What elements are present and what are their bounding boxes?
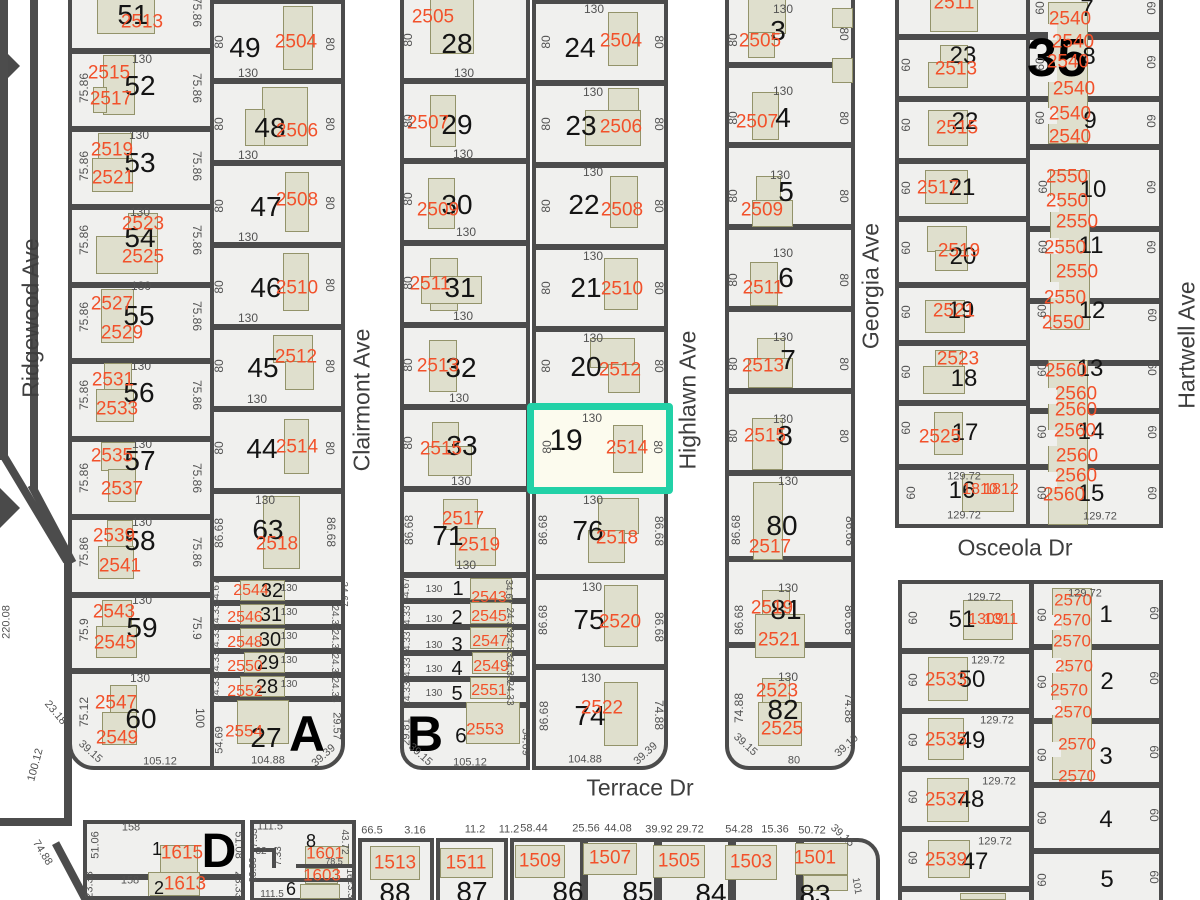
dimension-label: 44.08	[604, 824, 632, 835]
dimension-label: 129.72	[1083, 512, 1117, 523]
dimension-label: 130	[449, 392, 469, 404]
lot-number-label: 83	[799, 881, 830, 900]
dimension-label: 130	[581, 672, 601, 684]
dimension-label: 24.33	[212, 603, 222, 628]
dimension-label: 80	[324, 278, 336, 291]
address-label: 2540	[1052, 33, 1094, 52]
address-label: 2540	[1049, 105, 1091, 124]
dimension-label: 130	[773, 85, 793, 97]
dimension-label: 130	[451, 475, 471, 487]
address-label: 2504	[275, 33, 317, 52]
dimension-label: 100	[194, 708, 206, 728]
lot-number-label: 87	[456, 878, 487, 900]
address-label: 2520	[599, 613, 641, 632]
dimension-label: 130	[778, 475, 798, 487]
dimension-label: 60	[1145, 240, 1157, 253]
dimension-label: 60	[1036, 811, 1048, 824]
lot-number-label: 21	[570, 274, 601, 302]
dimension-label: 60	[1036, 304, 1048, 317]
dimension-label: 74.88	[653, 700, 665, 730]
dimension-label: 75.86	[191, 151, 203, 181]
dimension-label: 130	[131, 360, 151, 372]
dimension-label: 80	[324, 196, 336, 209]
dimension-label: 75.86	[78, 537, 90, 567]
dimension-label: 60	[1146, 362, 1158, 375]
dimension-label: 129.72	[978, 837, 1012, 848]
address-label: 2535	[925, 731, 967, 750]
dimension-label: 100.12	[26, 747, 45, 782]
dimension-label: 129.72	[967, 593, 1001, 604]
dimension-label: 80	[653, 117, 665, 130]
dimension-label: 104.88	[251, 756, 285, 767]
dimension-label: 60	[907, 790, 919, 803]
dimension-label: 80	[213, 441, 225, 454]
address-label: 2505	[412, 8, 454, 27]
dimension-label: 80	[788, 756, 800, 767]
address-label: 2554	[225, 723, 263, 740]
dimension-label: 129.72	[947, 511, 981, 522]
address-label: 2511	[743, 279, 784, 298]
dimension-label: 75.86	[191, 380, 203, 410]
dimension-label: 104.88	[568, 755, 602, 766]
dimension-label: 24.33	[504, 632, 514, 657]
address-label: 2513	[742, 357, 784, 376]
dimension-label: 130	[773, 247, 793, 259]
dimension-label: 75.86	[191, 537, 203, 567]
dimension-label: 51.06	[91, 831, 102, 859]
address-label: 2550	[1044, 289, 1086, 308]
address-label: 2525	[122, 248, 164, 267]
address-label: 2509	[417, 201, 459, 220]
address-label: 2511	[934, 0, 975, 13]
dimension-label: 130	[426, 665, 443, 675]
address-label: 2508	[601, 201, 643, 220]
address-label: 2513	[417, 357, 459, 376]
address-label: 2505	[739, 32, 781, 51]
address-label: 2547	[95, 694, 137, 713]
dimension-label: 34.67	[338, 581, 348, 606]
address-label: 2543	[471, 590, 507, 606]
address-label: 2529	[101, 324, 143, 343]
lot-number-label: 28	[441, 30, 472, 58]
dimension-label: 80	[838, 189, 850, 202]
dimension-label: 60	[1146, 308, 1158, 321]
dimension-label: 130	[453, 148, 473, 160]
address-label: 2514	[276, 438, 318, 457]
dimension-label: 130	[454, 67, 474, 79]
address-label: 2550	[227, 659, 263, 675]
dimension-label: 60	[1148, 808, 1160, 821]
address-label: 2521	[933, 302, 975, 321]
dimension-label: 24.33	[329, 629, 339, 654]
address-label: 2541	[99, 557, 141, 576]
dimension-label: 39.92	[645, 825, 673, 836]
dimension-label: 80	[727, 357, 739, 370]
dimension-label: 80	[324, 37, 336, 50]
address-label: 2504	[600, 32, 642, 51]
address-label: 2543	[93, 603, 135, 622]
dimension-label: 130	[778, 671, 798, 683]
address-label: 2560	[1054, 422, 1096, 441]
dimension-label: 60	[1036, 608, 1048, 621]
dimension-label: 75.86	[191, 73, 203, 103]
dimension-label: 80	[402, 33, 414, 46]
address-label: 2548	[227, 635, 263, 651]
dimension-label: 80	[213, 35, 225, 48]
dimension-label: 130	[583, 250, 603, 262]
lot-number-label: 3	[451, 635, 462, 655]
dimension-label: 11.2	[465, 825, 486, 836]
street-name-label: Highlawn Ave	[677, 331, 700, 470]
dimension-label: 60	[1036, 748, 1048, 761]
dimension-label: 130	[773, 413, 793, 425]
dimension-label: 101	[850, 877, 863, 895]
lot-number-label: 18	[951, 367, 978, 391]
dimension-label: 58.44	[520, 824, 548, 835]
dimension-label: 86.68	[538, 701, 550, 731]
dimension-label: 23.33	[85, 871, 96, 899]
dimension-label: 60	[1145, 55, 1157, 68]
dimension-label: 29.57	[331, 712, 342, 740]
lot-number-label: 88	[379, 879, 410, 900]
dimension-label: 75.86	[78, 463, 90, 493]
address-label: 2513	[935, 60, 977, 79]
dimension-label: 80	[213, 199, 225, 212]
lot-number-label: 2	[154, 879, 164, 897]
lot-number-label: 1	[1099, 603, 1112, 627]
dimension-label: 60	[1036, 425, 1048, 438]
parcel[interactable]	[1030, 784, 1163, 852]
address-label: 2519	[751, 599, 793, 618]
dimension-label: 60	[1037, 180, 1049, 193]
address-label: 1603	[303, 867, 341, 884]
address-label: 2514	[606, 439, 648, 458]
dimension-label: 74.88	[733, 693, 745, 723]
dimension-label: 130	[130, 206, 150, 218]
dimension-label: 60	[1145, 1, 1157, 14]
address-label: 2521	[92, 169, 134, 188]
dimension-label: 75.86	[78, 380, 90, 410]
dimension-label: 23.33	[233, 871, 244, 899]
lot-number-label: 4	[451, 659, 462, 679]
boundary-line	[0, 0, 8, 460]
address-label: 2515	[744, 427, 786, 446]
lot-number-label: 31	[260, 605, 282, 625]
address-label: 2550	[1046, 168, 1088, 187]
dimension-label: 60	[1034, 111, 1046, 124]
dimension-label: 24.33	[403, 631, 413, 656]
address-label: 2539	[93, 527, 135, 546]
dimension-label: 86.68	[213, 518, 225, 548]
address-label: 2507	[736, 113, 778, 132]
dimension-label: 24.33	[329, 653, 339, 678]
address-label: 2537	[925, 791, 967, 810]
lot-number-label: 19	[549, 426, 582, 456]
address-label: 2519	[938, 242, 980, 261]
address-label: 2570	[1050, 682, 1088, 699]
dimension-label: 60	[1036, 873, 1048, 886]
dimension-label: 86.68	[653, 612, 665, 642]
dimension-label: 60	[1146, 486, 1158, 499]
lot-number-label: 44	[246, 435, 277, 463]
address-label: 2540	[1053, 80, 1095, 99]
block-letter-label: D	[202, 828, 237, 876]
dimension-label: 130	[453, 310, 473, 322]
lot-number-label: 4	[1099, 808, 1112, 832]
dimension-label: 60	[907, 733, 919, 746]
dimension-label: 60	[907, 611, 919, 624]
dimension-label: 158	[122, 823, 140, 834]
dimension-label: 75.86	[78, 151, 90, 181]
address-label: 2547	[472, 634, 508, 650]
dimension-label: 78.5	[325, 858, 343, 867]
dimension-label: 34.67	[503, 579, 513, 604]
dimension-label: 130	[456, 559, 476, 571]
dimension-label: 130	[281, 584, 298, 594]
dimension-label: 60	[1145, 114, 1157, 127]
dimension-label: 75.9	[191, 616, 203, 639]
address-label: 2537	[101, 480, 143, 499]
dimension-label: 11.2	[499, 825, 520, 836]
dimension-label: 86.68	[653, 516, 665, 546]
address-label: 2513	[121, 13, 163, 32]
dimension-label: 75.86	[78, 302, 90, 332]
dimension-label: 60	[900, 58, 912, 71]
dimension-label: 130	[131, 280, 151, 292]
dimension-label: 129.72	[971, 656, 1005, 667]
dimension-label: 60	[1146, 425, 1158, 438]
dimension-label: 60	[1034, 57, 1046, 70]
dimension-label: 25.56	[572, 824, 600, 835]
address-label: 1507	[589, 849, 631, 868]
dimension-label: 80	[727, 33, 739, 46]
dimension-label: 130	[238, 231, 258, 243]
dimension-label: 60	[905, 486, 917, 499]
dimension-label: 130	[582, 412, 602, 424]
address-label: 2515	[420, 440, 462, 459]
dimension-label: 80	[838, 429, 850, 442]
address-label: 2509	[741, 201, 783, 220]
parcel-map-canvas[interactable]: 5152535455565758596049484746454463323130…	[0, 0, 1200, 900]
address-label: 2570	[1058, 768, 1096, 785]
address-label: 2570	[1053, 612, 1091, 629]
address-label: 2560	[1055, 401, 1097, 420]
address-label: 2533	[925, 671, 967, 690]
lot-number-label: 22	[568, 191, 599, 219]
street-name-label: Terrace Dr	[586, 777, 693, 800]
dimension-label: 86.68	[537, 605, 549, 635]
address-label: 2560	[1056, 447, 1098, 466]
dimension-label: 130	[281, 656, 298, 666]
dimension-label: 130	[426, 689, 443, 699]
dimension-label: 75.86	[191, 463, 203, 493]
dimension-label: 60	[900, 365, 912, 378]
dimension-label: 75.86	[191, 301, 203, 331]
dimension-label: 60	[1148, 870, 1160, 883]
dimension-label: 130	[255, 494, 275, 506]
address-label: 1501	[794, 849, 836, 868]
dimension-label: 130	[583, 86, 603, 98]
street-name-label: Clairmont Ave	[351, 329, 374, 472]
dimension-label: 86.68	[843, 605, 855, 635]
address-label: 2535	[91, 447, 133, 466]
address-label: 2560	[1055, 467, 1097, 486]
street-name-label: Georgia Ave	[860, 223, 883, 349]
dimension-label: 74.88	[30, 838, 54, 867]
address-label: 2533	[96, 400, 138, 419]
dimension-label: 130	[456, 226, 476, 238]
dimension-label: 74.88	[843, 693, 855, 723]
address-label: 2525	[919, 428, 961, 447]
address-label: 2551	[471, 683, 507, 699]
address-label: 2560	[1045, 362, 1087, 381]
address-label: 2545	[471, 609, 507, 625]
dimension-label: 60	[1036, 486, 1048, 499]
dimension-label: 60	[907, 851, 919, 864]
dimension-label: 80	[540, 281, 552, 294]
dimension-label: 54.69	[215, 726, 226, 754]
address-label: 2570	[1058, 736, 1096, 753]
address-label: 2550	[1046, 192, 1088, 211]
street-name-label: Ridgewood Ave	[20, 238, 43, 397]
dimension-label: 130	[583, 494, 603, 506]
dimension-label: 80	[727, 111, 739, 124]
dimension-label: 80	[653, 199, 665, 212]
dimension-label: 32	[255, 847, 266, 857]
dimension-label: 130	[238, 149, 258, 161]
address-label: 2518	[256, 535, 298, 554]
dimension-label: 130	[238, 312, 258, 324]
road-arrow-icon	[0, 482, 20, 534]
lot-number-label: 24	[564, 34, 595, 62]
dimension-label: 60	[1148, 745, 1160, 758]
dimension-label: 80	[324, 359, 336, 372]
dimension-label: 66.5	[361, 826, 382, 837]
dimension-label: 23.33	[249, 857, 259, 882]
address-label: 2540	[1049, 10, 1091, 29]
dimension-label: 23.3	[345, 879, 355, 898]
dimension-label: 24.33	[212, 627, 222, 652]
dimension-label: 60	[900, 181, 912, 194]
dimension-label: 60	[1148, 671, 1160, 684]
dimension-label: 75.9	[78, 618, 90, 641]
address-label: 2546	[227, 610, 263, 626]
address-label: 2519	[458, 536, 500, 555]
dimension-label: 24.33	[504, 656, 514, 681]
dimension-label: 60	[1036, 363, 1048, 376]
lot-number-label: 49	[229, 34, 260, 62]
address-label: 1812	[983, 482, 1019, 498]
address-label: 2539	[925, 851, 967, 870]
street-name-label: Hartwell Ave	[1176, 281, 1199, 408]
address-label: 1505	[658, 852, 700, 871]
address-label: 1511	[446, 854, 487, 873]
address-label: 2510	[276, 279, 318, 298]
dimension-label: 129.72	[947, 472, 981, 483]
parcel[interactable]	[1030, 720, 1163, 786]
dimension-label: 60	[1148, 606, 1160, 619]
dimension-label: 158	[121, 876, 139, 887]
dimension-label: 86.68	[537, 515, 549, 545]
dimension-label: 130	[238, 67, 258, 79]
dimension-label: 51.08	[233, 831, 244, 859]
dimension-label: 29.81	[402, 718, 413, 746]
dimension-label: 130	[130, 672, 150, 684]
dimension-label: 54.28	[725, 825, 753, 836]
dimension-label: 75.86	[191, 225, 203, 255]
dimension-label: 15.36	[761, 825, 789, 836]
dimension-label: 3.16	[404, 826, 425, 837]
dimension-label: 24.33	[403, 681, 413, 706]
address-label: 2515	[88, 64, 130, 83]
dimension-label: 130	[773, 3, 793, 15]
address-label: 2522	[581, 699, 623, 718]
dimension-label: 24.33	[504, 607, 514, 632]
dimension-label: 24.33	[403, 657, 413, 682]
dimension-label: 129.72	[1068, 589, 1102, 600]
address-label: 2523	[937, 350, 979, 369]
dimension-label: 130	[582, 581, 602, 593]
dimension-label: 60	[900, 305, 912, 318]
dimension-label: 86.68	[325, 517, 337, 547]
dimension-label: 130	[584, 3, 604, 15]
dimension-label: 60	[900, 421, 912, 434]
dimension-label: 130	[583, 332, 603, 344]
dimension-label: 60	[1036, 675, 1048, 688]
dimension-label: 75.86	[191, 0, 203, 27]
address-label: 1513	[374, 854, 416, 873]
dimension-label: 34.67	[402, 577, 412, 602]
lot-number-label: 1	[452, 579, 463, 599]
lot-number-label: 20	[570, 353, 601, 381]
dimension-label: 80	[653, 359, 665, 372]
dimension-label: 80	[541, 440, 553, 453]
address-label: 2545	[94, 634, 136, 653]
dimension-label: 80	[838, 27, 850, 40]
dimension-label: 34.67	[212, 579, 222, 604]
dimension-label: 24.33	[403, 605, 413, 630]
dimension-label: 86.68	[844, 516, 856, 546]
dimension-label: 80	[402, 276, 414, 289]
dimension-label: 105.12	[453, 758, 487, 769]
dimension-label: 130	[281, 608, 298, 618]
dimension-label: 7.33	[274, 846, 284, 865]
dimension-label: 24.33	[212, 651, 222, 676]
lot-number-label: 23	[565, 112, 596, 140]
dimension-label: 80	[540, 359, 552, 372]
dimension-label: 129.72	[980, 716, 1014, 727]
address-label: 2515	[936, 119, 978, 138]
dimension-label: 16	[344, 868, 354, 879]
dimension-label: 24.33	[504, 680, 514, 705]
address-label: 2508	[276, 191, 318, 210]
address-label: 2570	[1053, 633, 1091, 650]
address-label: 2517	[917, 179, 959, 198]
dimension-label: 80	[324, 441, 336, 454]
address-label: 2552	[227, 684, 263, 700]
address-label: 2511	[410, 275, 451, 294]
dimension-label: 50.72	[798, 826, 826, 837]
dimension-label: 130	[426, 641, 443, 651]
dimension-label: 130	[132, 516, 152, 528]
dimension-label: 80	[727, 273, 739, 286]
address-label: 2540	[1049, 128, 1091, 147]
address-label: 2570	[1054, 704, 1092, 721]
dimension-label: 220.08	[2, 605, 13, 639]
address-label: 1615	[161, 844, 203, 863]
address-label: 2512	[275, 348, 317, 367]
parcel[interactable]	[1030, 850, 1163, 900]
